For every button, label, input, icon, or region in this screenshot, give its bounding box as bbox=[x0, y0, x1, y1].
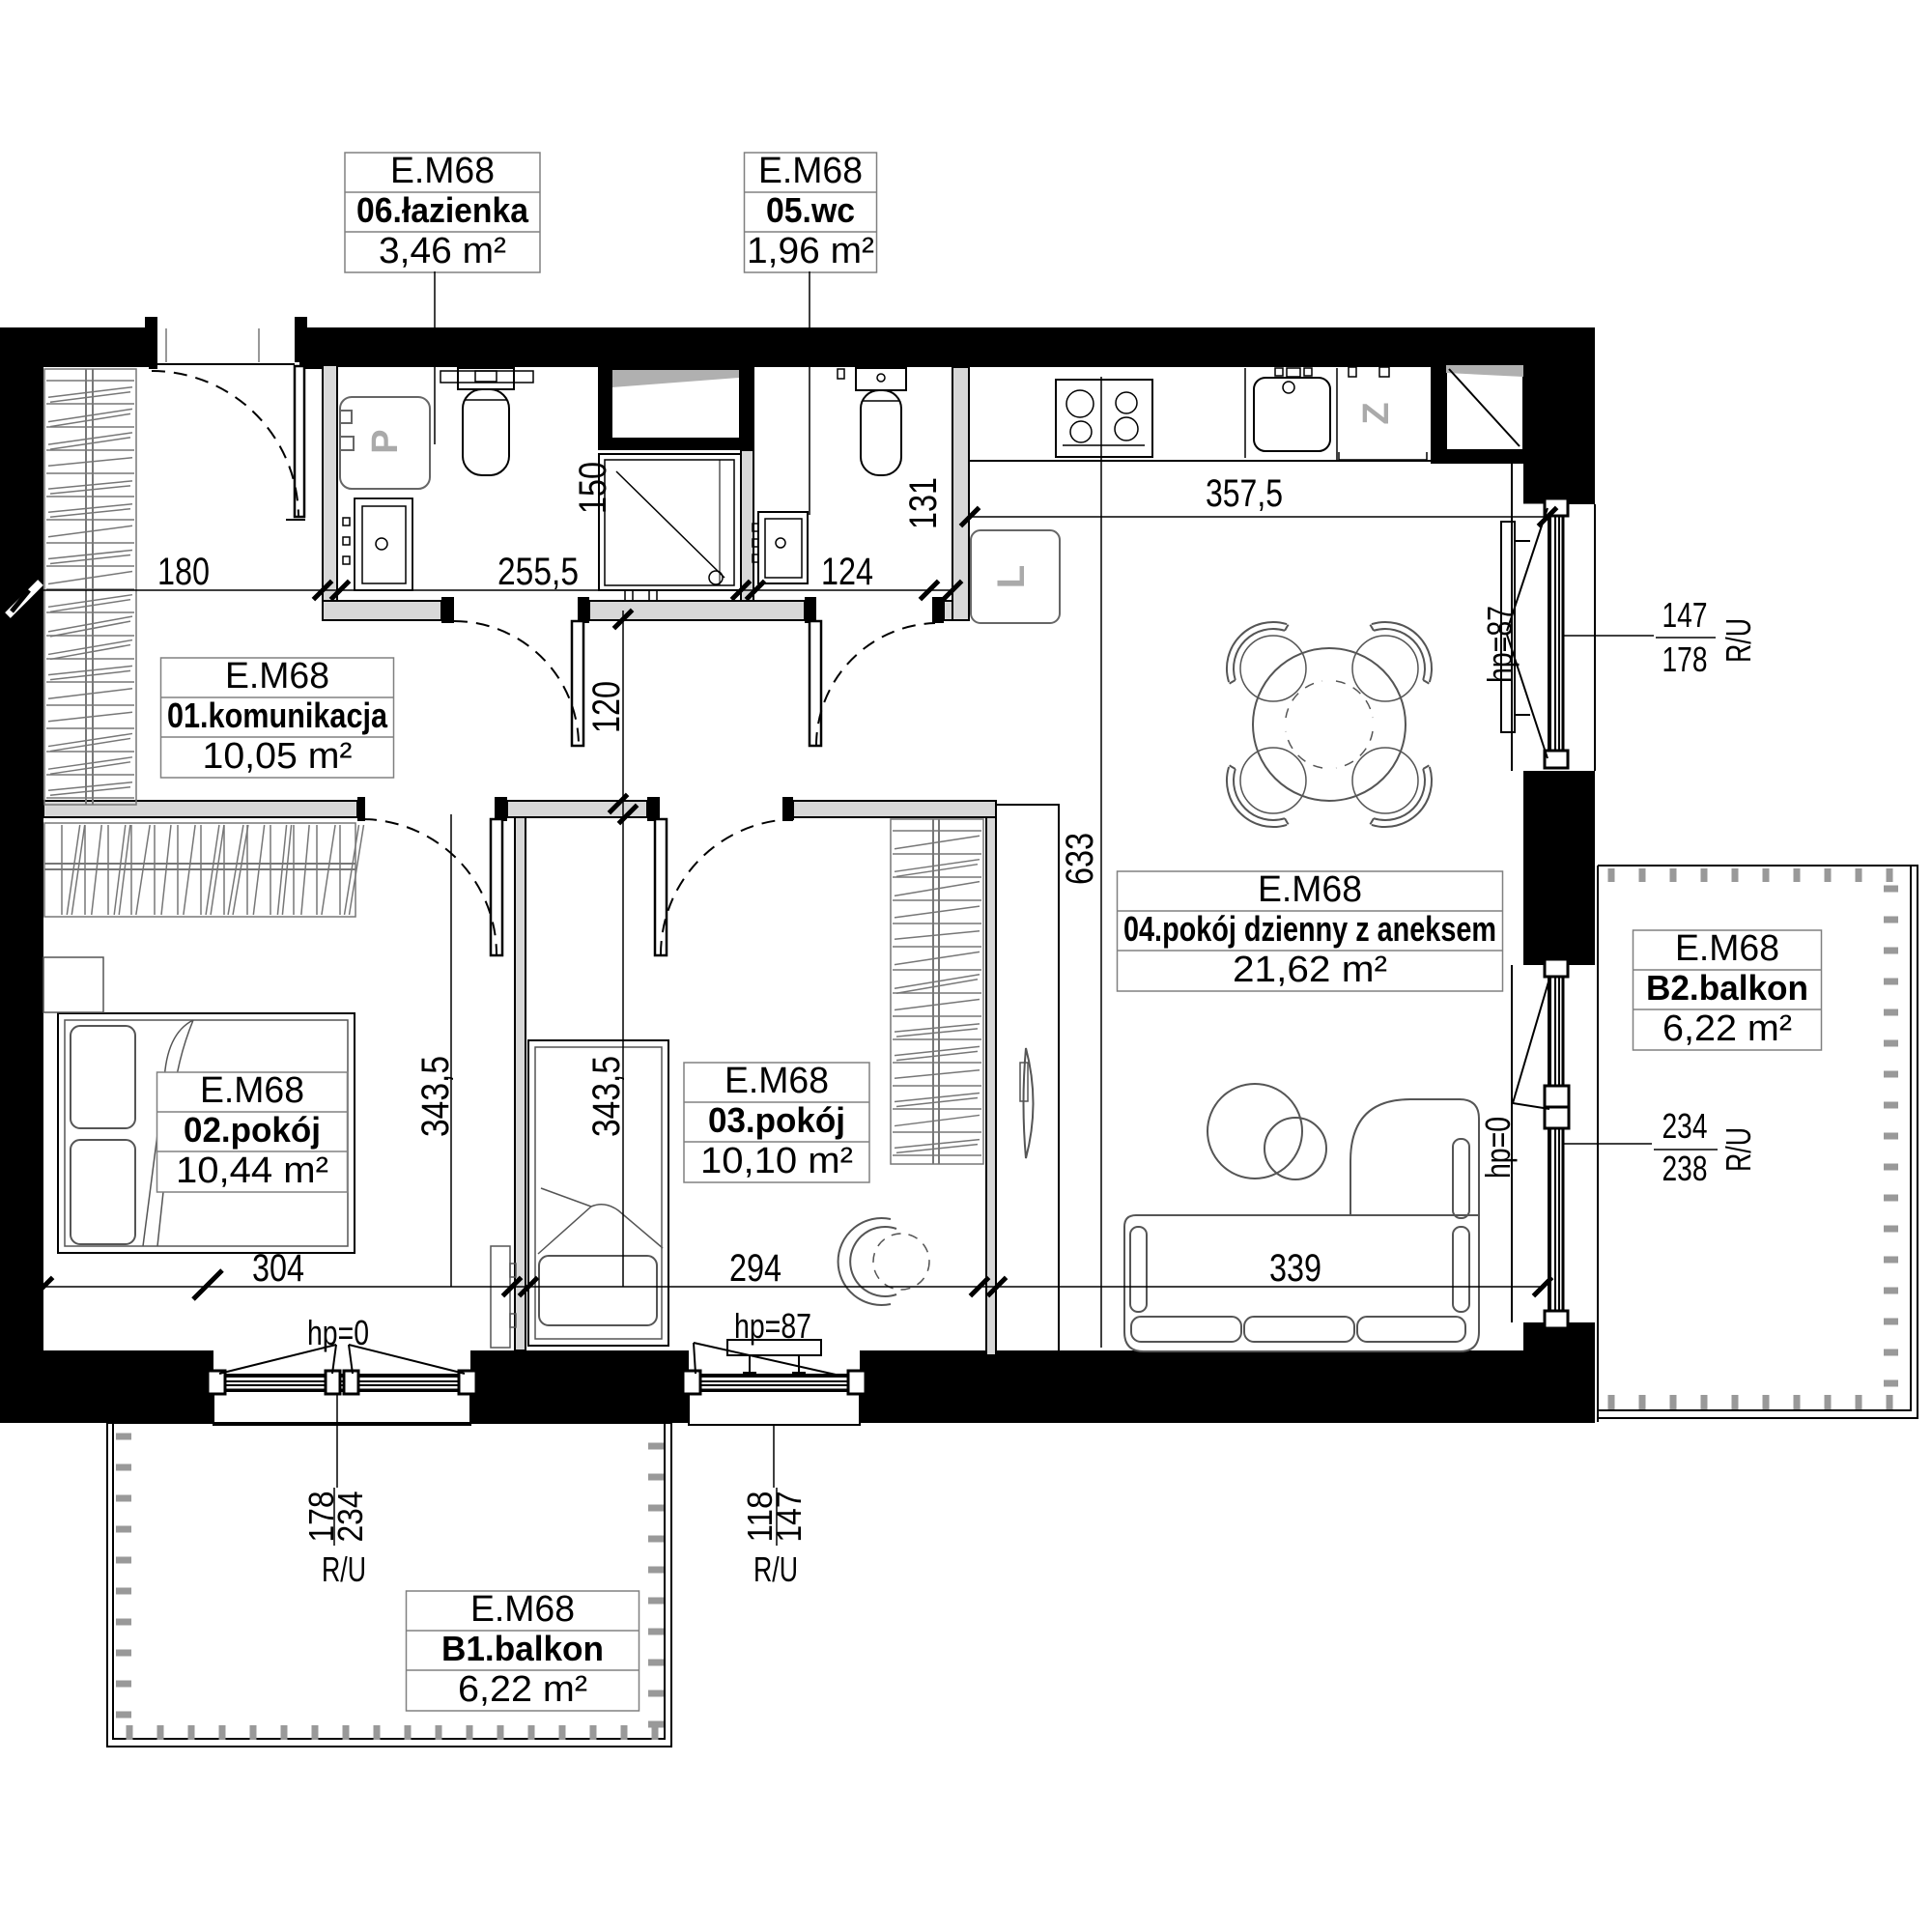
svg-text:150: 150 bbox=[572, 462, 614, 514]
svg-text:E.M68: E.M68 bbox=[470, 1589, 575, 1630]
svg-text:hp=87: hp=87 bbox=[1480, 606, 1520, 683]
svg-text:255,5: 255,5 bbox=[497, 551, 579, 593]
svg-text:234: 234 bbox=[330, 1492, 370, 1543]
svg-text:304: 304 bbox=[252, 1247, 304, 1290]
svg-text:03.pokój: 03.pokój bbox=[708, 1100, 845, 1140]
svg-text:120: 120 bbox=[585, 681, 628, 733]
svg-text:6,22 m²: 6,22 m² bbox=[458, 1669, 587, 1710]
svg-text:1,96 m²: 1,96 m² bbox=[747, 231, 874, 271]
svg-text:hp=87: hp=87 bbox=[734, 1306, 811, 1346]
svg-text:124: 124 bbox=[821, 551, 873, 593]
svg-text:hp=0: hp=0 bbox=[307, 1313, 369, 1352]
svg-text:234: 234 bbox=[1662, 1106, 1708, 1146]
svg-text:B1.balkon: B1.balkon bbox=[441, 1629, 604, 1668]
svg-text:hp=0: hp=0 bbox=[1478, 1117, 1518, 1179]
svg-text:180: 180 bbox=[157, 551, 210, 593]
svg-text:R/U: R/U bbox=[753, 1549, 798, 1589]
svg-text:E.M68: E.M68 bbox=[1675, 928, 1779, 969]
svg-text:R/U: R/U bbox=[1719, 1127, 1758, 1172]
svg-text:04.pokój dzienny z aneksem: 04.pokój dzienny z aneksem bbox=[1123, 909, 1496, 949]
svg-text:E.M68: E.M68 bbox=[200, 1070, 304, 1111]
svg-text:178: 178 bbox=[1662, 639, 1708, 679]
svg-text:E.M68: E.M68 bbox=[1258, 869, 1362, 910]
svg-text:B2.balkon: B2.balkon bbox=[1646, 968, 1808, 1008]
svg-text:238: 238 bbox=[1662, 1149, 1708, 1188]
svg-text:R/U: R/U bbox=[322, 1549, 366, 1589]
svg-text:R/U: R/U bbox=[1719, 618, 1758, 663]
svg-text:E.M68: E.M68 bbox=[724, 1061, 829, 1101]
svg-text:357,5: 357,5 bbox=[1206, 472, 1283, 515]
svg-text:10,10 m²: 10,10 m² bbox=[700, 1141, 853, 1181]
svg-text:147: 147 bbox=[769, 1492, 809, 1543]
svg-text:P: P bbox=[365, 429, 406, 453]
svg-text:Z: Z bbox=[1356, 402, 1397, 424]
svg-text:633: 633 bbox=[1059, 833, 1101, 885]
svg-text:339: 339 bbox=[1269, 1247, 1321, 1290]
svg-text:06.łazienka: 06.łazienka bbox=[356, 190, 529, 230]
svg-text:343,5: 343,5 bbox=[414, 1056, 457, 1137]
svg-text:147: 147 bbox=[1662, 595, 1708, 635]
svg-text:E.M68: E.M68 bbox=[225, 656, 329, 696]
svg-text:E.M68: E.M68 bbox=[390, 151, 495, 191]
svg-text:10,05 m²: 10,05 m² bbox=[203, 736, 353, 777]
svg-text:343,5: 343,5 bbox=[585, 1056, 628, 1137]
svg-text:10,44 m²: 10,44 m² bbox=[176, 1151, 328, 1191]
svg-text:01.komunikacja: 01.komunikacja bbox=[167, 696, 388, 735]
svg-text:E.M68: E.M68 bbox=[758, 151, 863, 191]
svg-text:05.wc: 05.wc bbox=[766, 190, 855, 230]
svg-text:L: L bbox=[990, 565, 1033, 588]
svg-text:131: 131 bbox=[902, 477, 945, 529]
svg-text:02.pokój: 02.pokój bbox=[184, 1110, 321, 1150]
svg-text:3,46 m²: 3,46 m² bbox=[379, 231, 506, 271]
svg-text:21,62 m²: 21,62 m² bbox=[1233, 950, 1387, 990]
svg-text:294: 294 bbox=[729, 1247, 781, 1290]
svg-text:6,22 m²: 6,22 m² bbox=[1662, 1009, 1792, 1049]
